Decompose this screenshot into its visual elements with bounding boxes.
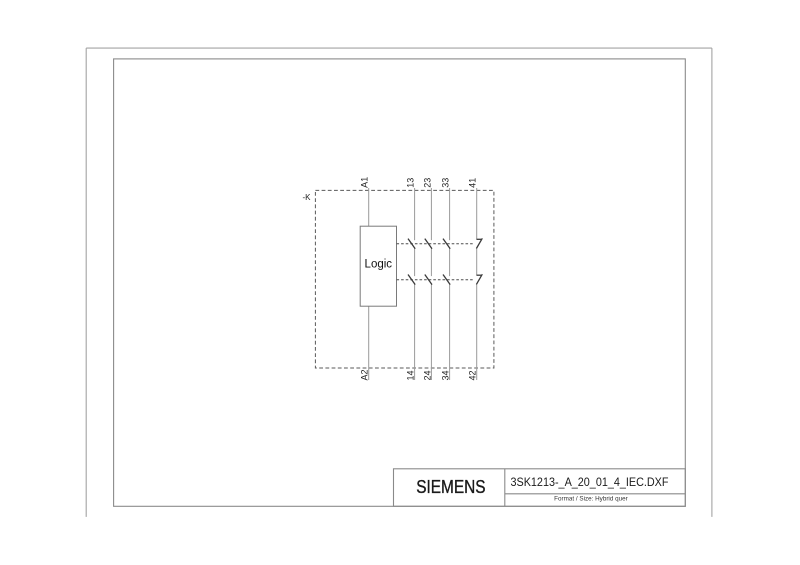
svg-text:41: 41	[468, 178, 478, 188]
svg-text:Logic: Logic	[365, 258, 393, 270]
svg-text:-K: -K	[303, 193, 312, 202]
svg-text:Format / Size: Hybrid quer: Format / Size: Hybrid quer	[554, 497, 628, 503]
svg-text:3SK1213-_A_20_01_4_IEC.DXF: 3SK1213-_A_20_01_4_IEC.DXF	[511, 475, 669, 489]
svg-text:23: 23	[422, 178, 432, 188]
svg-text:SIEMENS: SIEMENS	[416, 476, 485, 497]
svg-text:13: 13	[406, 178, 416, 188]
svg-text:A1: A1	[360, 177, 370, 188]
svg-text:33: 33	[441, 178, 451, 188]
